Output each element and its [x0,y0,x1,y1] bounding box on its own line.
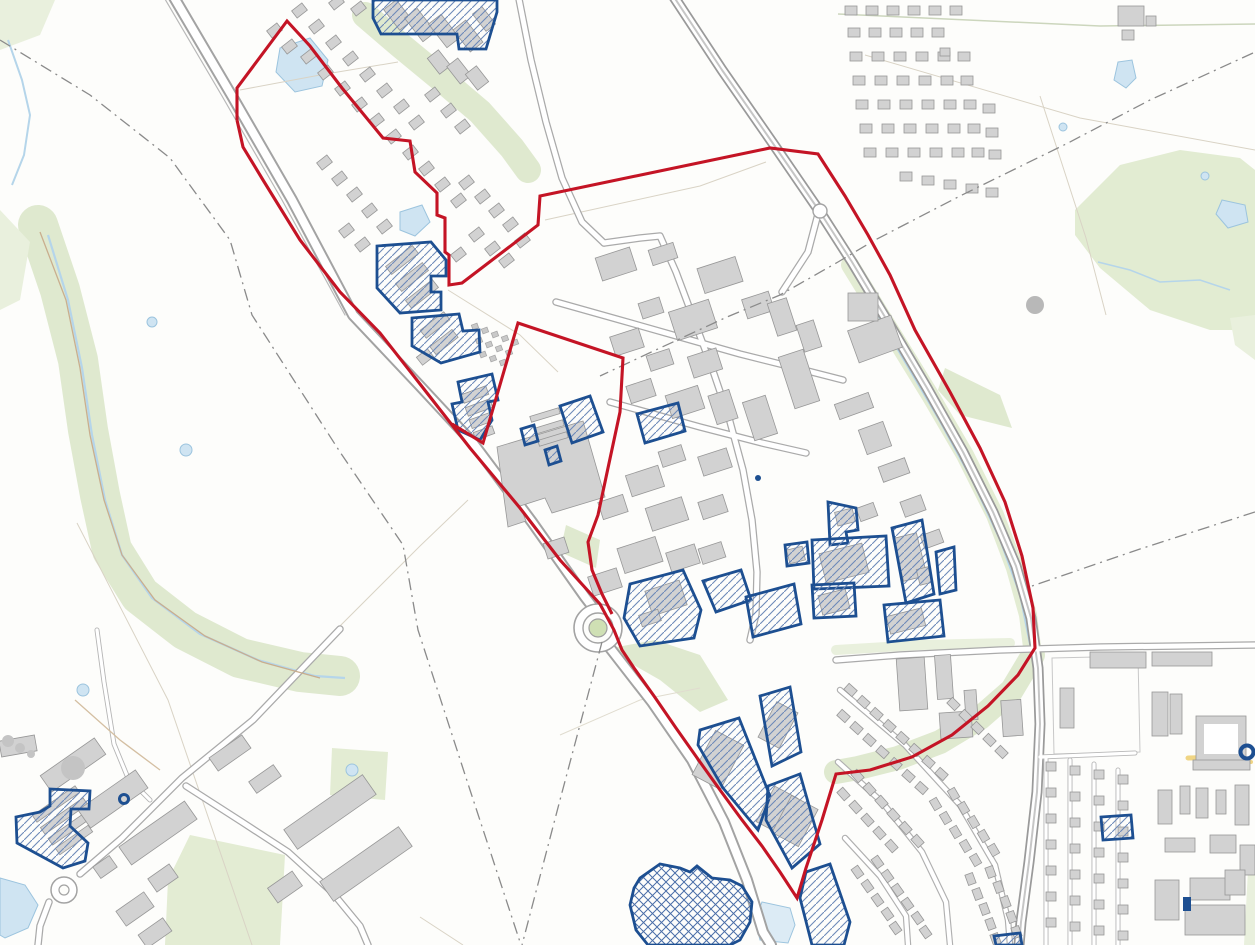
terraces-east-part [1070,844,1080,853]
houses-ne-part [878,100,890,109]
houses-ne-part [968,124,980,133]
map-canvas[interactable] [0,0,1255,945]
school-blocks-part [934,654,953,699]
terraces-east-part [1070,870,1080,879]
institutional-e-part [1180,786,1190,814]
pond [346,764,358,776]
school-blocks-part [1090,652,1146,668]
houses-ne-part [900,172,912,181]
houses-ne-part [958,52,970,61]
school-blocks-part [1152,652,1212,666]
houses-ne-part [850,52,862,61]
courtyard-hole-part [1204,724,1238,754]
institutional-e-part [1152,692,1168,736]
houses-ne-part [922,100,934,109]
institutional-e-part [1170,694,1182,734]
institutional-e-part [1165,838,1195,852]
institutional-e-part [1210,835,1236,853]
terraces-east-part [1046,892,1056,901]
houses-ne-part [882,124,894,133]
houses-ne-part [875,76,887,85]
terraces-east-part [1070,766,1080,775]
houses-ne-part [930,148,942,157]
terraces-east-part [1094,796,1104,805]
houses-ne-part [869,28,881,37]
terraces-east-part [1118,905,1128,914]
pond [1201,172,1209,180]
farm-ne-part [940,48,950,56]
houses-ne-part [845,6,857,15]
terraces-east-part [1046,918,1056,927]
terraces-east-part [1094,874,1104,883]
terraces-east-part [1070,818,1080,827]
allocation-area [812,583,856,618]
farm-ne-part [1146,16,1156,26]
map-background [0,0,1255,945]
terraces-east-part [1070,792,1080,801]
institutional-e-part [1216,790,1226,814]
houses-ne-part [886,148,898,157]
tank [15,743,25,753]
tank [1026,296,1044,314]
houses-ne-part [926,124,938,133]
farm-ne-part [848,293,878,321]
terraces-east-part [1094,848,1104,857]
allocation-area [521,425,538,445]
houses-ne-part [887,6,899,15]
blue-dot-marker [755,475,761,481]
houses-ne-part [897,76,909,85]
school-blocks-part [1060,688,1074,728]
terraces-east-part [1046,762,1056,771]
houses-ne-part [948,124,960,133]
houses-ne-part [872,52,884,61]
terraces-east-part [1094,926,1104,935]
allocation-area [994,933,1022,945]
blue-rect-marker [1183,897,1191,911]
houses-ne-part [900,100,912,109]
houses-ne-part [983,104,995,113]
institutional-e-part [1158,790,1172,824]
terraces-east-part [1094,770,1104,779]
houses-ne-part [848,28,860,37]
tank [2,735,14,747]
houses-ne-part [944,180,956,189]
allocation-area [785,542,809,566]
houses-ne-part [961,76,973,85]
junction-circle [813,204,827,218]
houses-ne-part [866,6,878,15]
institutional-e-part [1235,785,1249,825]
terraces-east-part [1070,896,1080,905]
terraces-east-part [1070,922,1080,931]
terraces-east-part [1118,879,1128,888]
roundabout-island [589,619,607,637]
houses-ne-part [860,124,872,133]
farm-ne-part [1118,6,1144,26]
farm-ne-part [1122,30,1134,40]
houses-ne-part [890,28,902,37]
terraces-east-part [1046,788,1056,797]
houses-ne-part [864,148,876,157]
school-blocks-part [896,657,928,711]
houses-ne-part [944,100,956,109]
houses-ne-part [932,28,944,37]
blue-rect-marker-part [1183,897,1191,911]
houses-ne-part [856,100,868,109]
houses-ne-part [922,176,934,185]
tank [27,750,35,758]
allocation-area [1101,815,1133,840]
houses-ne-part [853,76,865,85]
houses-ne-part [986,188,998,197]
houses-ne-part [919,76,931,85]
houses-ne-part [964,100,976,109]
houses-ne-part [929,6,941,15]
allocation-area [884,600,944,642]
houses-ne-part [911,28,923,37]
terraces-east-part [1046,866,1056,875]
houses-ne-part [916,52,928,61]
tank [61,756,85,780]
school-blocks-part [1001,699,1023,736]
institutional-e-part [1155,880,1179,920]
institutional-e-part [1190,878,1230,900]
houses-ne-part [952,148,964,157]
pond [1059,123,1067,131]
courtyard-hole [1204,724,1238,754]
houses-ne-part [908,6,920,15]
terraces-east-part [1118,801,1128,810]
terraces-east-part [1046,840,1056,849]
houses-ne-part [894,52,906,61]
houses-ne-part [950,6,962,15]
terraces-east-part [1046,814,1056,823]
pond [77,684,89,696]
institutional-e-part [1193,760,1250,770]
allocation-area [936,547,956,594]
mini-roundabout-island [59,885,69,895]
pond [147,317,157,327]
houses-ne-part [941,76,953,85]
pond [180,444,192,456]
institutional-e-part [1185,905,1245,935]
houses-ne-part [904,124,916,133]
allocation-area [624,570,701,646]
allocation-area [545,446,561,465]
houses-ne-part [908,148,920,157]
allocation-area [812,536,889,589]
houses-ne-part [989,150,1001,159]
houses-ne-part [986,128,998,137]
terraces-east-part [1094,900,1104,909]
terraces-east-part [1118,775,1128,784]
terraces-east-part [1118,853,1128,862]
institutional-e-part [1196,788,1208,818]
institutional-e-part [1225,870,1245,895]
greenery [165,835,285,945]
map-viewport[interactable] [0,0,1255,945]
terraces-east-part [1118,931,1128,940]
houses-ne-part [972,148,984,157]
